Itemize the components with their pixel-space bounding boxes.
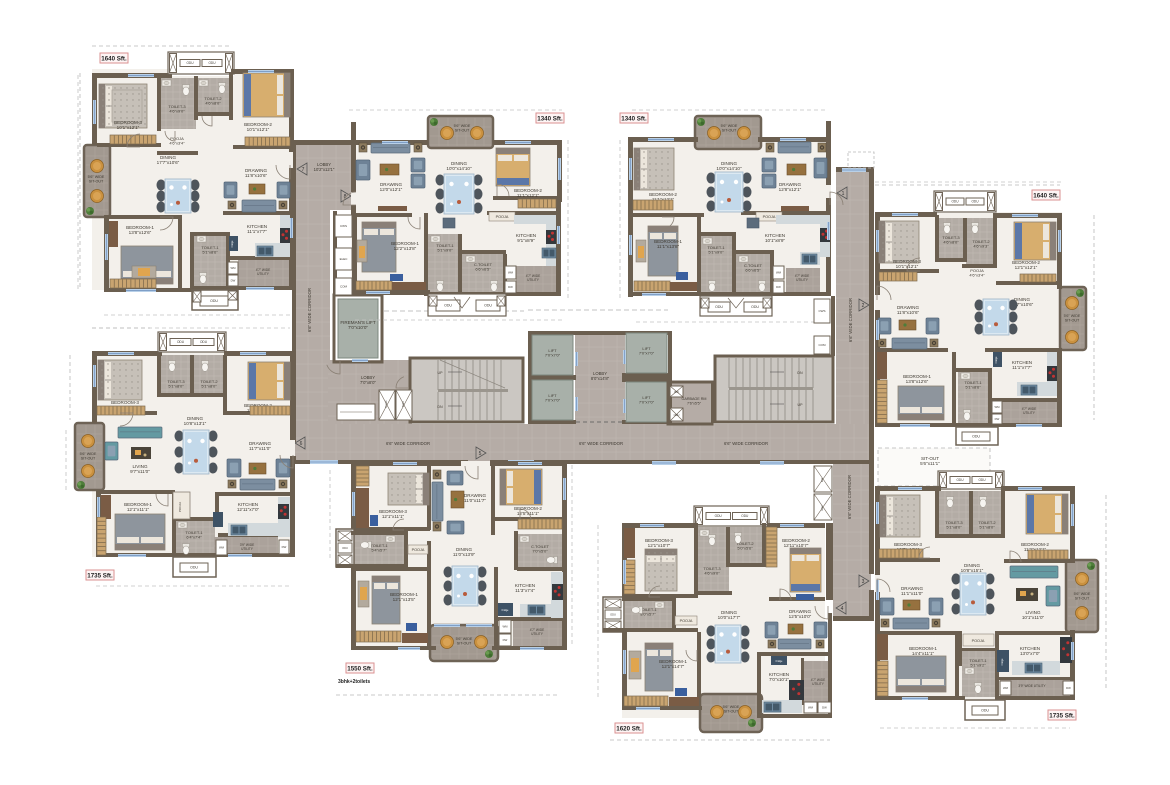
svg-text:ODU: ODU (971, 200, 979, 204)
svg-text:KITCHEN11'1"x7'7": KITCHEN11'1"x7'7" (247, 224, 267, 234)
svg-text:ODU: ODU (978, 478, 986, 482)
svg-text:KITCHEN11'3"x7'4": KITCHEN11'3"x7'4" (515, 583, 535, 593)
svg-text:ODU: ODU (674, 413, 680, 417)
svg-text:6'6" WIDE CORRIDOR: 6'6" WIDE CORRIDOR (579, 441, 623, 446)
svg-text:Fridge: Fridge (776, 660, 783, 663)
svg-text:ODU: ODU (177, 340, 185, 344)
svg-text:Fridge: Fridge (502, 609, 509, 612)
svg-text:6'6" WIDE CORRIDOR: 6'6" WIDE CORRIDOR (847, 475, 852, 519)
svg-text:3'9" WIDEUTILITY: 3'9" WIDEUTILITY (240, 543, 255, 551)
svg-text:4'7" WIDEUTILITY: 4'7" WIDEUTILITY (526, 274, 541, 282)
svg-text:ODU: ODU (951, 200, 959, 204)
svg-text:TOILET-34'6"x9'0": TOILET-34'6"x9'0" (168, 104, 186, 114)
svg-text:ODU: ODU (484, 304, 492, 308)
svg-text:DRAWING12'8"x12'1": DRAWING12'8"x12'1" (779, 182, 802, 192)
svg-text:BEDROOM-310'1"x12'1": BEDROOM-310'1"x12'1" (114, 120, 142, 130)
svg-text:1550 Sft.: 1550 Sft. (347, 666, 373, 673)
svg-text:DRAWING11'7"x11'0": DRAWING11'7"x11'0" (249, 441, 271, 451)
svg-text:3bhk+2toilets: 3bhk+2toilets (338, 679, 370, 685)
svg-text:COM: COM (819, 343, 827, 347)
svg-text:1735 Sft.: 1735 Sft. (1049, 713, 1075, 720)
svg-text:DRAWING12'0"x12'1": DRAWING12'0"x12'1" (380, 182, 403, 192)
svg-text:1735 Sft.: 1735 Sft. (87, 573, 113, 580)
svg-text:6'6" WIDE CORRIDOR: 6'6" WIDE CORRIDOR (724, 441, 768, 446)
svg-text:5'6" WIDESIT-OUT: 5'6" WIDESIT-OUT (80, 452, 97, 460)
svg-text:WM: WM (231, 266, 237, 270)
svg-text:BEDROOM-211'1"x12'1": BEDROOM-211'1"x12'1" (514, 188, 542, 198)
svg-text:BEDROOM-112'1"x13'5": BEDROOM-112'1"x13'5" (390, 592, 418, 602)
svg-text:6'6" WIDE CORRIDOR: 6'6" WIDE CORRIDOR (848, 298, 853, 342)
svg-text:POOJA: POOJA (972, 639, 985, 643)
svg-text:WM: WM (776, 271, 782, 275)
svg-text:ODU: ODU (190, 566, 198, 570)
svg-text:DW: DW (508, 285, 513, 289)
svg-text:BEDROOM-113'8"x12'6": BEDROOM-113'8"x12'6" (903, 374, 931, 384)
svg-text:Elec: Elec (820, 505, 824, 511)
svg-text:5'6" WIDESIT-OUT: 5'6" WIDESIT-OUT (1074, 592, 1091, 600)
svg-text:TOILET-16'4"x7'4": TOILET-16'4"x7'4" (185, 530, 203, 540)
svg-text:BEDROOM-112'2"x13'8": BEDROOM-112'2"x13'8" (391, 241, 419, 251)
svg-text:POOJA: POOJA (412, 548, 425, 552)
svg-text:TOILET-15'1"x9'0": TOILET-15'1"x9'0" (436, 243, 454, 253)
svg-text:DRAWING12'5"x10'0": DRAWING12'5"x10'0" (789, 609, 812, 619)
svg-text:WC: WC (674, 390, 680, 394)
svg-text:BEDROOM-212'5"x11'1": BEDROOM-212'5"x11'1" (514, 506, 542, 516)
svg-text:CWS: CWS (819, 309, 826, 313)
svg-text:TOILET-34'6"x8'0": TOILET-34'6"x8'0" (942, 235, 960, 245)
svg-text:COM: COM (340, 285, 348, 289)
svg-text:ODU: ODU (610, 613, 616, 617)
svg-text:DW: DW (503, 638, 508, 642)
svg-text:4'7" WIDEUTILITY: 4'7" WIDEUTILITY (530, 628, 545, 636)
svg-text:WM: WM (995, 405, 1001, 409)
svg-text:DW: DW (776, 285, 781, 289)
svg-text:POOJA: POOJA (178, 502, 182, 512)
svg-text:4: 4 (841, 606, 844, 612)
svg-text:4'7" WIDEUTILITY: 4'7" WIDEUTILITY (795, 274, 810, 282)
svg-text:C.TOILET6'6"x6'5": C.TOILET6'6"x6'5" (474, 262, 492, 272)
svg-text:DN: DN (437, 405, 443, 409)
svg-text:4'7" WIDEUTILITY: 4'7" WIDEUTILITY (1022, 407, 1037, 415)
svg-text:KITCHEN13'0"x7'0": KITCHEN13'0"x7'0" (1020, 646, 1040, 656)
svg-text:DN: DN (797, 371, 803, 375)
svg-text:TOILET-25'1"x8'0": TOILET-25'1"x8'0" (978, 520, 996, 530)
svg-text:WM: WM (508, 271, 514, 275)
svg-text:CWS: CWS (340, 224, 347, 228)
svg-text:KITCHEN10'1"x8'9": KITCHEN10'1"x8'9" (765, 233, 785, 243)
svg-text:TOILET-15'1"x9'0": TOILET-15'1"x9'0" (707, 245, 725, 255)
svg-text:POOJA: POOJA (763, 215, 776, 219)
svg-text:BEDROOM-210'1"x12'1": BEDROOM-210'1"x12'1" (244, 122, 272, 132)
svg-text:3: 3 (862, 579, 865, 585)
svg-text:ODU: ODU (972, 435, 980, 439)
svg-text:ODU: ODU (741, 514, 749, 518)
svg-text:1640 Sft.: 1640 Sft. (1033, 193, 1059, 200)
svg-text:Telm: Telm (401, 400, 405, 407)
svg-text:KITCHEN7'0"x10'1": KITCHEN7'0"x10'1" (769, 672, 789, 682)
svg-text:DRAWING11'8"x10'6": DRAWING11'8"x10'6" (245, 168, 268, 178)
svg-text:LIVING9'7"x11'0": LIVING9'7"x11'0" (130, 464, 150, 474)
svg-text:ODU: ODU (444, 304, 452, 308)
svg-text:Fridge: Fridge (995, 356, 998, 363)
svg-text:Fire: Fire (820, 477, 824, 482)
svg-text:ODU: ODU (342, 546, 348, 550)
svg-text:DW: DW (282, 545, 287, 549)
svg-text:ODU: ODU (210, 299, 218, 303)
svg-text:DW: DW (231, 279, 236, 283)
svg-text:DRAWING11'8"x10'6": DRAWING11'8"x10'6" (897, 305, 920, 315)
svg-text:TOILET-35'1"x8'0": TOILET-35'1"x8'0" (167, 379, 185, 389)
svg-text:5: 5 (479, 451, 482, 457)
svg-text:C.TOILET7'0"x5'0": C.TOILET7'0"x5'0" (531, 544, 549, 554)
svg-text:TOILET-35'1"x8'0": TOILET-35'1"x8'0" (945, 520, 963, 530)
svg-text:5'6" WIDESIT-OUT: 5'6" WIDESIT-OUT (721, 124, 738, 132)
svg-text:POOJA: POOJA (496, 215, 509, 219)
svg-text:POOJA: POOJA (680, 619, 693, 623)
svg-text:WM: WM (808, 706, 814, 710)
svg-text:WM: WM (1003, 686, 1009, 690)
svg-text:BEDROOM-113'8"x12'6": BEDROOM-113'8"x12'6" (126, 225, 154, 235)
svg-text:C.TOILET6'6"x6'5": C.TOILET6'6"x6'5" (744, 263, 762, 273)
svg-text:4'7" WIDEUTILITY: 4'7" WIDEUTILITY (811, 678, 826, 686)
svg-text:ODU: ODU (715, 305, 723, 309)
svg-text:ODU: ODU (956, 478, 964, 482)
svg-text:1: 1 (842, 191, 845, 197)
svg-text:DRAWING11'1"x11'0": DRAWING11'1"x11'0" (901, 586, 923, 596)
svg-text:5'6" WIDESIT-OUT: 5'6" WIDESIT-OUT (1064, 314, 1081, 322)
svg-text:ODU: ODU (186, 61, 194, 65)
svg-text:5'6" WIDESIT-OUT: 5'6" WIDESIT-OUT (723, 705, 740, 713)
svg-text:2: 2 (862, 303, 865, 309)
svg-text:BEDROOM-312'1"x11'1": BEDROOM-312'1"x11'1" (379, 509, 407, 519)
svg-text:ODU: ODU (751, 305, 759, 309)
svg-text:WM: WM (219, 546, 225, 550)
svg-text:BEDROOM-112'1"x11'1": BEDROOM-112'1"x11'1" (124, 502, 152, 512)
svg-text:BEDROOM-114'4"x11'1": BEDROOM-114'4"x11'1" (909, 646, 937, 656)
svg-text:ODU: ODU (715, 514, 723, 518)
svg-text:WM: WM (503, 625, 509, 629)
svg-text:4'7" WIDEUTILITY: 4'7" WIDEUTILITY (256, 268, 271, 276)
svg-text:3'9" WIDE UTILITY: 3'9" WIDE UTILITY (1018, 684, 1046, 688)
svg-text:7: 7 (302, 167, 305, 173)
svg-text:5'6" WIDESIT-OUT: 5'6" WIDESIT-OUT (88, 175, 105, 183)
svg-text:KITCHEN11'1"x7'7": KITCHEN11'1"x7'7" (1012, 360, 1032, 370)
svg-text:TOILET-15'4"x5'7": TOILET-15'4"x5'7" (370, 543, 388, 553)
svg-text:TOILET-15'1"x8'6": TOILET-15'1"x8'6" (201, 245, 219, 255)
svg-text:1340 Sft.: 1340 Sft. (537, 116, 563, 123)
svg-text:TOILET-24'6"x9'3": TOILET-24'6"x9'3" (972, 239, 990, 249)
svg-text:SIT-OUT5'6"x11'1": SIT-OUT5'6"x11'1" (920, 456, 940, 466)
svg-text:ODU: ODU (981, 709, 989, 713)
svg-text:Fridge: Fridge (1001, 658, 1004, 665)
svg-text:1640 Sft.: 1640 Sft. (101, 56, 127, 63)
svg-text:BEDROOM-212'11"x10'7": BEDROOM-212'11"x10'7" (782, 538, 810, 548)
svg-text:KITCHEN9'1"x8'9": KITCHEN9'1"x8'9" (516, 233, 536, 243)
svg-text:BEDROOM-112'1"x14'7": BEDROOM-112'1"x14'7" (659, 659, 687, 669)
svg-text:ODU: ODU (200, 340, 208, 344)
svg-text:5'6" WIDESIT-OUT: 5'6" WIDESIT-OUT (454, 124, 471, 132)
svg-text:TOILET-25'1"x8'0": TOILET-25'1"x8'0" (200, 379, 218, 389)
svg-text:TOILET-24'6"x8'0": TOILET-24'6"x8'0" (204, 96, 222, 106)
svg-text:UP: UP (438, 371, 444, 375)
svg-text:LOBBY8'0"x14'8": LOBBY8'0"x14'8" (591, 371, 610, 381)
svg-text:LOBBY7'0"x8'0": LOBBY7'0"x8'0" (360, 375, 376, 385)
svg-text:TOILET-15'1"x8'6": TOILET-15'1"x8'6" (964, 380, 982, 390)
svg-text:BEDROOM-312'1"x10'7": BEDROOM-312'1"x10'7" (645, 538, 673, 548)
svg-text:DRAWING11'0"x11'7": DRAWING11'0"x11'7" (464, 493, 486, 503)
svg-text:DW: DW (1066, 686, 1071, 690)
svg-text:ELEC: ELEC (340, 257, 349, 261)
svg-text:BEDROOM-212'1"x12'1": BEDROOM-212'1"x12'1" (1012, 260, 1040, 270)
svg-text:6: 6 (300, 441, 303, 447)
svg-text:6'6" WIDE CORRIDOR: 6'6" WIDE CORRIDOR (386, 441, 430, 446)
svg-text:6'6" WIDE CORRIDOR: 6'6" WIDE CORRIDOR (307, 288, 312, 332)
svg-text:TOILET-34'6"x9'0": TOILET-34'6"x9'0" (703, 566, 721, 576)
svg-text:Press: Press (384, 400, 388, 408)
svg-text:1620 Sft.: 1620 Sft. (616, 726, 642, 733)
svg-text:POOJA4'6"x3'4": POOJA4'6"x3'4" (969, 268, 985, 278)
svg-text:5'6" WIDESIT-OUT: 5'6" WIDESIT-OUT (456, 637, 473, 645)
svg-text:DW: DW (822, 706, 827, 710)
svg-text:DW: DW (995, 417, 1000, 421)
svg-text:1340 Sft.: 1340 Sft. (621, 116, 647, 123)
svg-text:UP: UP (798, 403, 804, 407)
svg-text:KITCHEN12'11"x7'0": KITCHEN12'11"x7'0" (237, 502, 260, 512)
svg-text:Fridge: Fridge (231, 240, 234, 247)
svg-text:BEDROOM-111'1"x13'8": BEDROOM-111'1"x13'8" (654, 239, 682, 249)
svg-text:TOILET-15'1"x9'2": TOILET-15'1"x9'2" (969, 658, 987, 668)
svg-text:ODU: ODU (208, 61, 216, 65)
